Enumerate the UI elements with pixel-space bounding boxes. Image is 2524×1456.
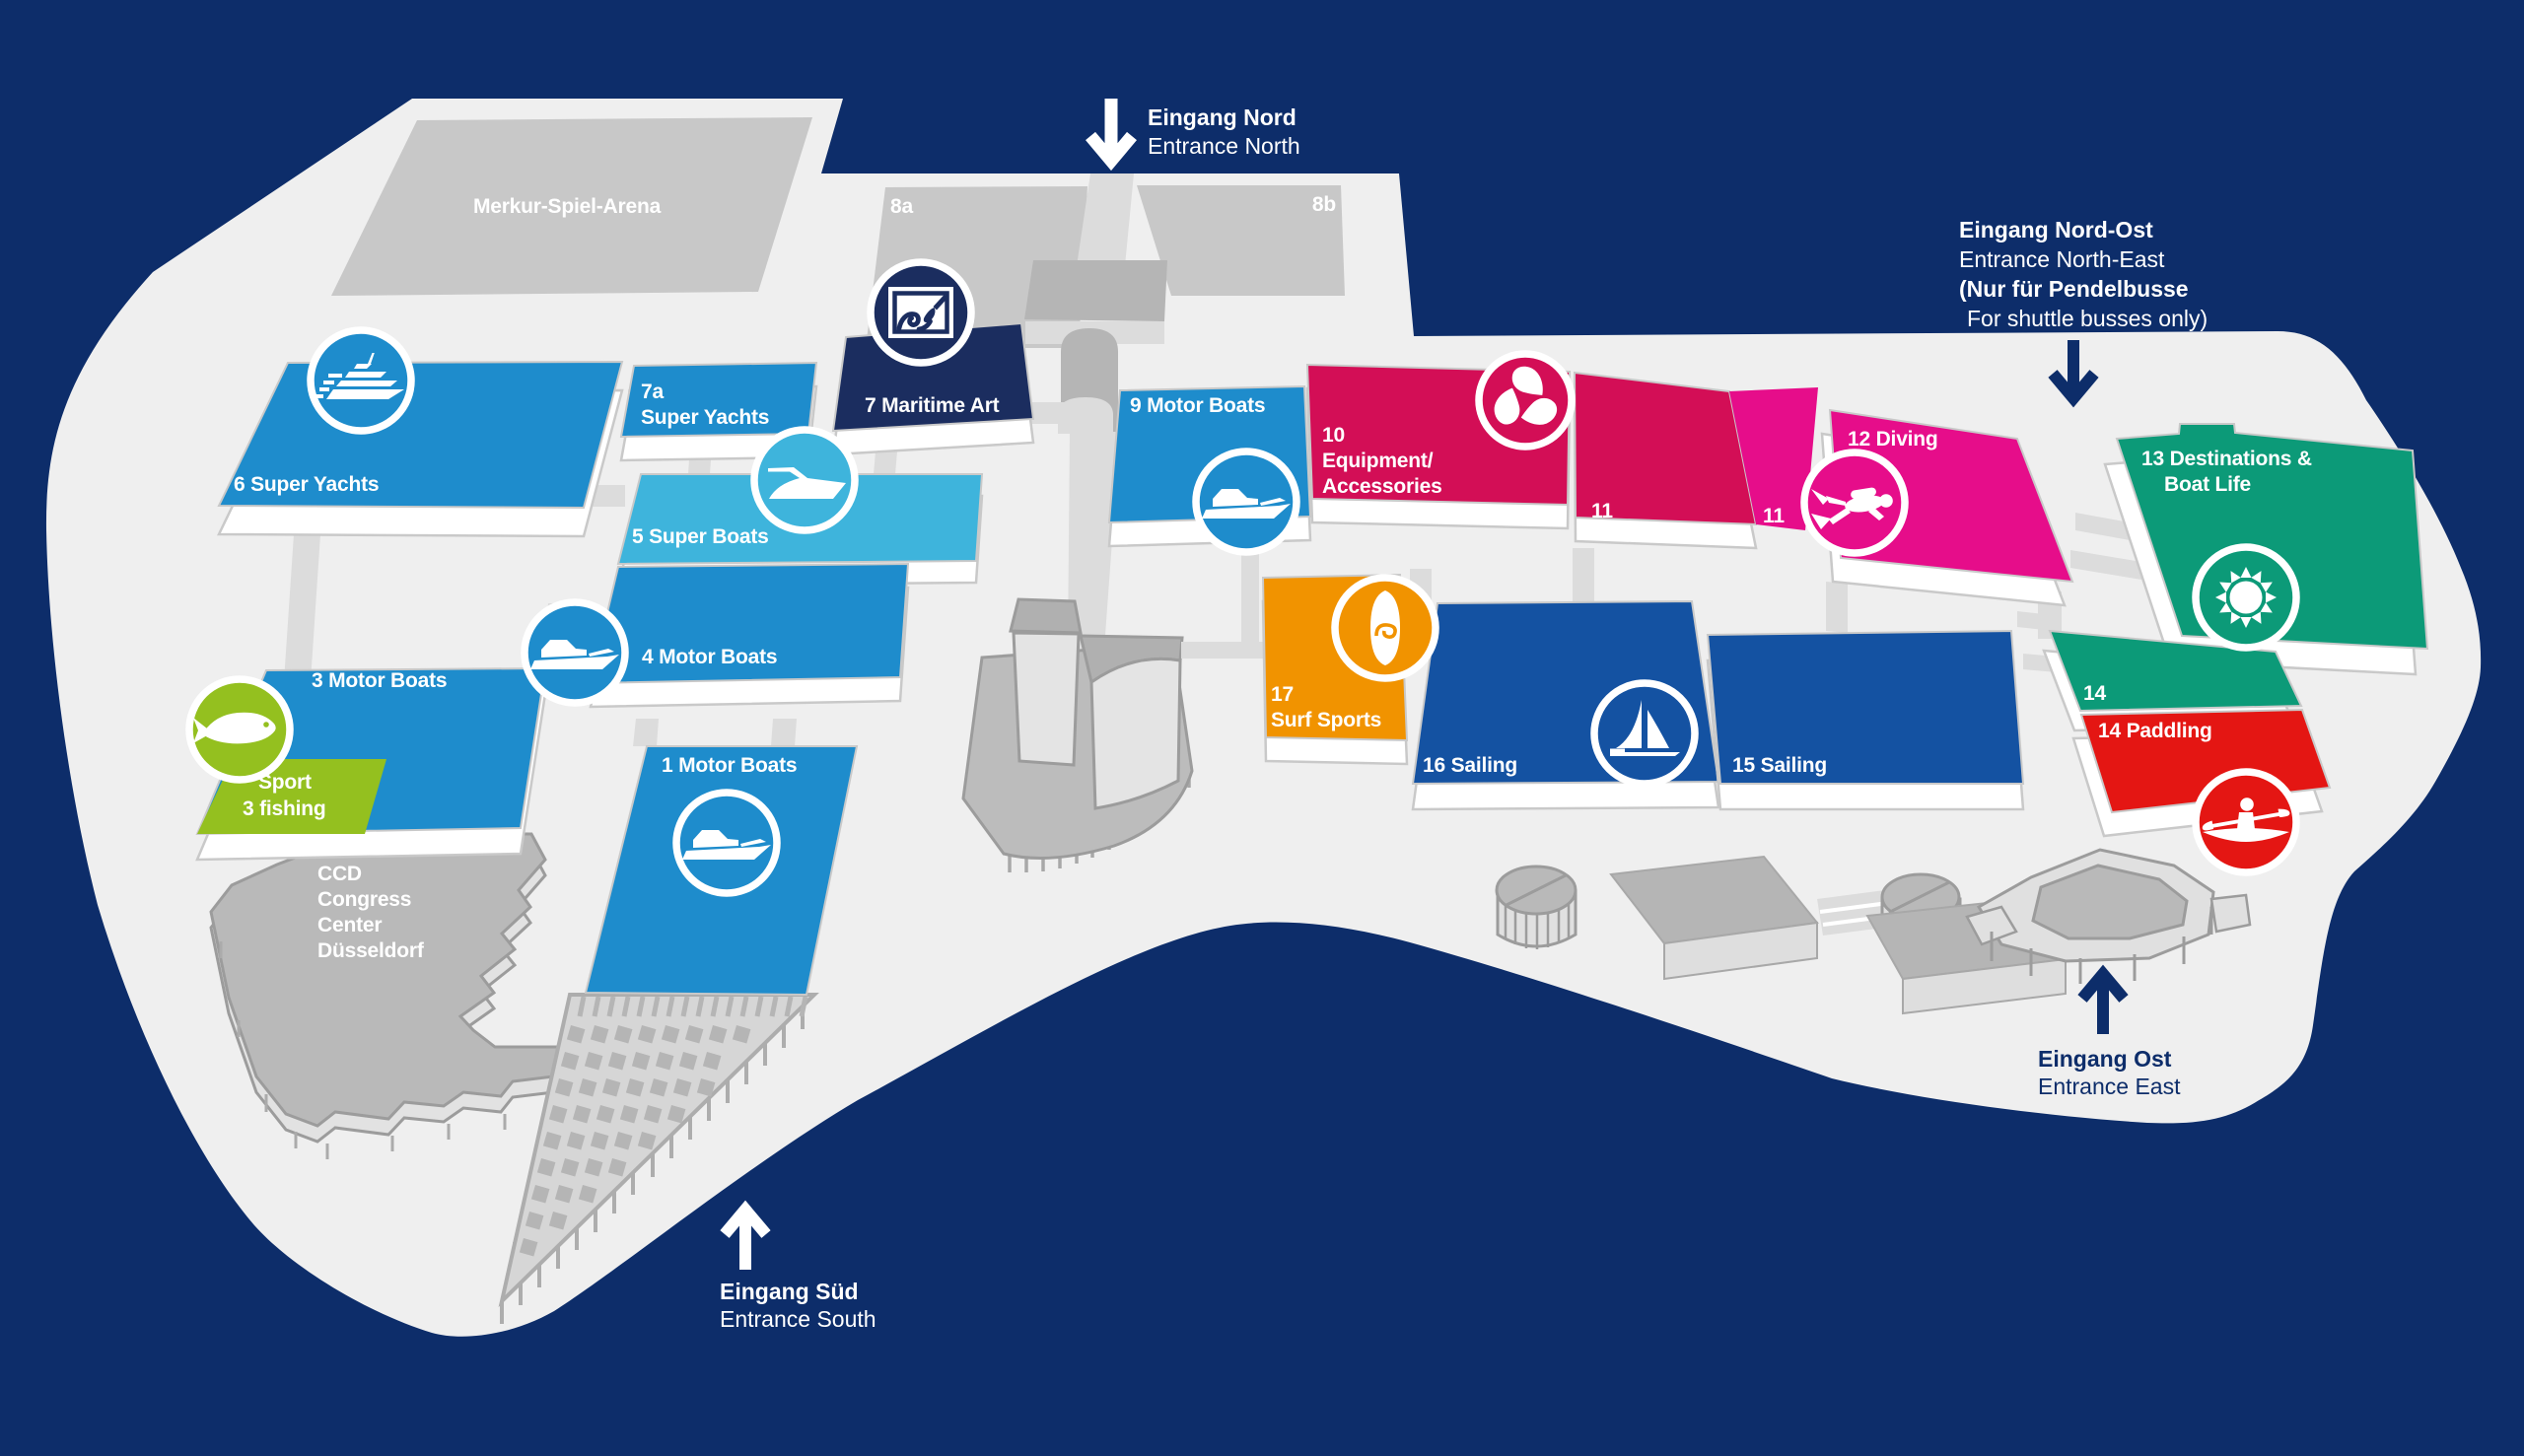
svg-text:17: 17 [1271, 683, 1294, 706]
svg-text:Entrance South: Entrance South [720, 1306, 876, 1332]
svg-text:Merkur-Spiel-Arena: Merkur-Spiel-Arena [473, 195, 662, 218]
svg-text:5 Super Boats: 5 Super Boats [632, 525, 769, 548]
svg-text:CCD: CCD [317, 863, 362, 885]
svg-text:9 Motor Boats: 9 Motor Boats [1130, 394, 1265, 417]
svg-text:Eingang Nord-Ost: Eingang Nord-Ost [1959, 217, 2153, 243]
svg-text:7 Maritime Art: 7 Maritime Art [865, 394, 1000, 417]
svg-text:1 Motor Boats: 1 Motor Boats [662, 754, 797, 777]
svg-text:4 Motor Boats: 4 Motor Boats [642, 646, 777, 668]
svg-text:Eingang Nord: Eingang Nord [1148, 104, 1297, 130]
svg-text:Düsseldorf: Düsseldorf [317, 939, 425, 962]
svg-text:3 Motor Boats: 3 Motor Boats [312, 669, 447, 692]
svg-text:Boat Life: Boat Life [2164, 473, 2251, 496]
svg-text:Eingang Ost: Eingang Ost [2038, 1046, 2172, 1072]
svg-text:Equipment/: Equipment/ [1322, 450, 1434, 472]
svg-text:Congress: Congress [317, 888, 411, 911]
svg-text:14: 14 [2083, 682, 2106, 705]
svg-text:(Nur für Pendelbusse: (Nur für Pendelbusse [1959, 276, 2189, 302]
svg-text:Entrance East: Entrance East [2038, 1074, 2181, 1099]
svg-text:6 Super Yachts: 6 Super Yachts [234, 473, 379, 496]
svg-text:Center: Center [317, 914, 382, 936]
svg-text:Super Yachts: Super Yachts [641, 406, 769, 429]
svg-text:15 Sailing: 15 Sailing [1732, 754, 1827, 777]
svg-text:16 Sailing: 16 Sailing [1423, 754, 1517, 777]
svg-text:3 fishing: 3 fishing [243, 797, 326, 820]
svg-text:Accessories: Accessories [1322, 475, 1442, 498]
svg-text:14 Paddling: 14 Paddling [2098, 720, 2212, 742]
svg-text:12 Diving: 12 Diving [1848, 428, 1938, 451]
svg-text:11: 11 [1591, 500, 1613, 522]
svg-text:Eingang Süd: Eingang Süd [720, 1279, 859, 1304]
svg-text:11: 11 [1763, 505, 1785, 527]
svg-text:Entrance North: Entrance North [1148, 133, 1300, 159]
svg-text:Entrance North-East: Entrance North-East [1959, 246, 2165, 272]
svg-text:8b: 8b [1312, 193, 1336, 216]
svg-text:7a: 7a [641, 381, 664, 403]
svg-text:10: 10 [1322, 424, 1345, 447]
svg-text:For shuttle busses only): For shuttle busses only) [1967, 306, 2208, 331]
svg-text:Surf Sports: Surf Sports [1271, 709, 1381, 731]
svg-text:8a: 8a [890, 195, 913, 218]
svg-text:13 Destinations &: 13 Destinations & [2141, 448, 2312, 470]
